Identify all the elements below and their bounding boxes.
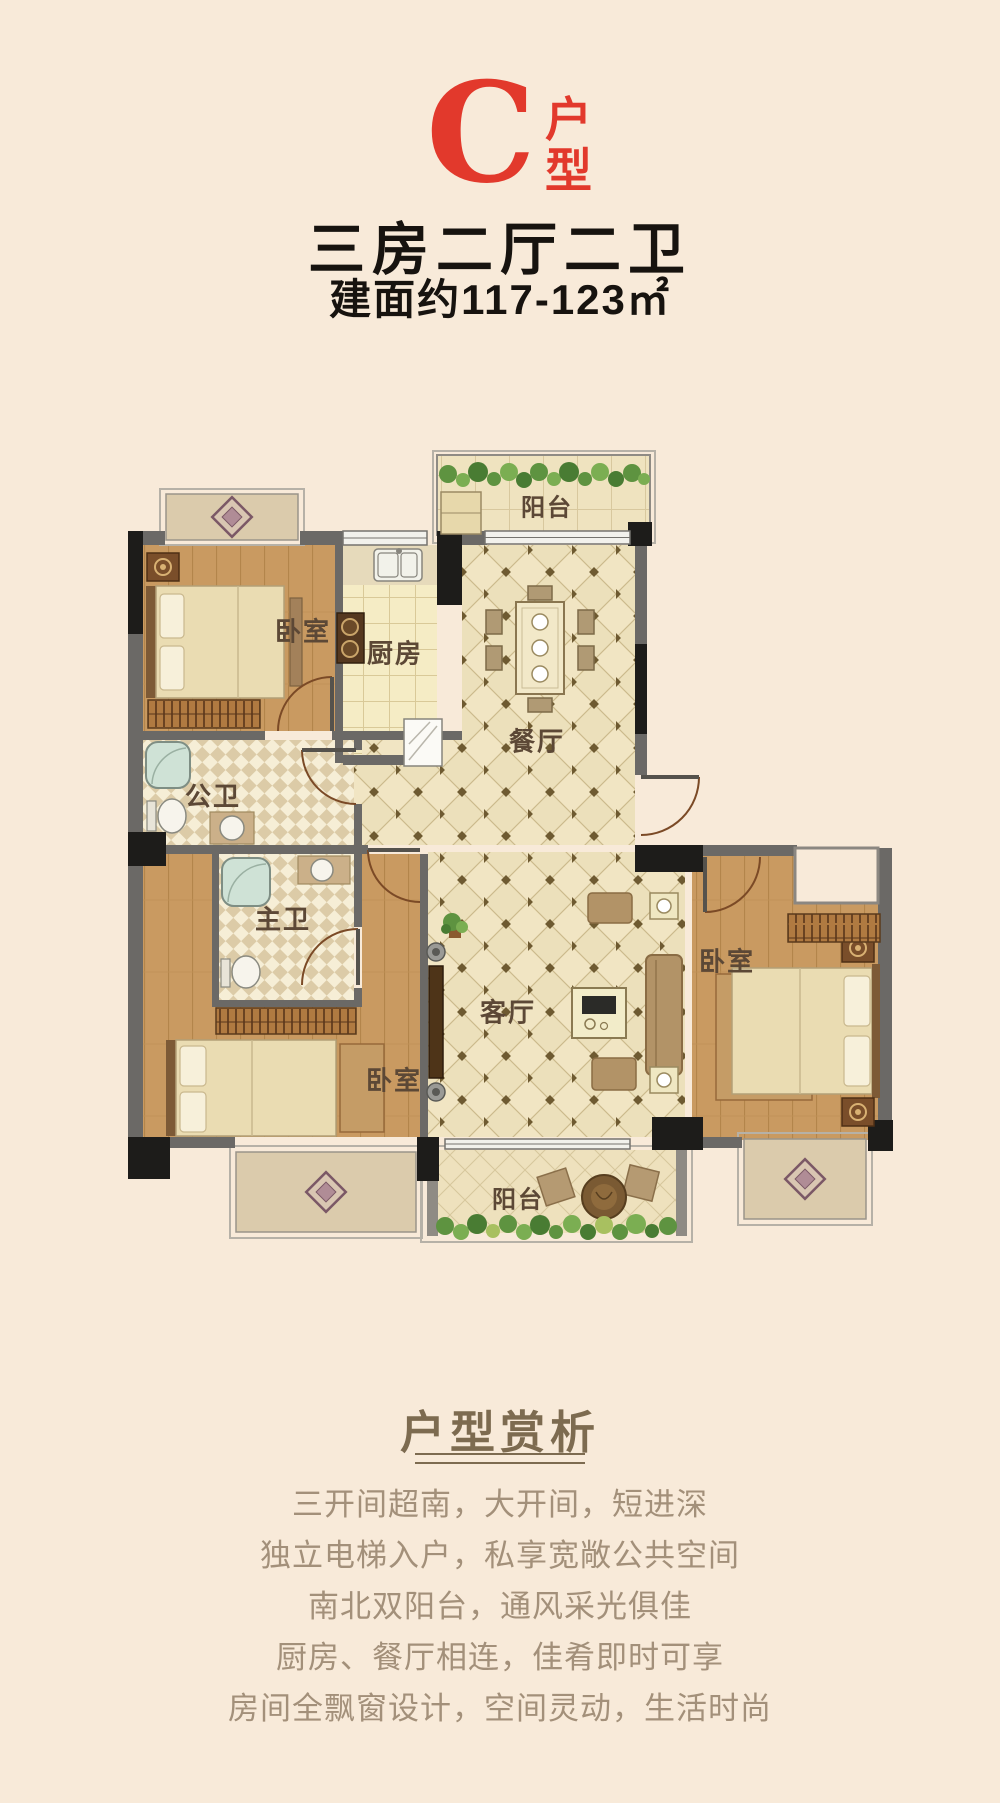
room-label-balcony-north: 阳台 xyxy=(521,488,573,523)
unit-label-top-char: 户 xyxy=(545,94,592,145)
analysis-text: 三开间超南，大开间，短进深 独立电梯入户，私享宽敞公共空间 南北双阳台，通风采光… xyxy=(0,1479,1000,1734)
analysis-line: 南北双阳台，通风采光俱佳 xyxy=(0,1581,1000,1632)
analysis-line: 厨房、餐厅相连，佳肴即时可享 xyxy=(0,1632,1000,1683)
bath-sink-icon xyxy=(210,812,254,844)
room-label-bedroom-right: 卧室 xyxy=(699,942,755,979)
unit-label-bottom-char: 型 xyxy=(545,145,592,196)
glass-door-icon xyxy=(404,719,442,766)
wardrobe-icon xyxy=(216,1008,356,1034)
room-label-kitchen: 厨房 xyxy=(367,634,423,671)
unit-letter: C xyxy=(426,64,536,202)
tv-console-icon xyxy=(427,943,445,1101)
toilet-icon xyxy=(147,799,186,833)
area-text: 建面约117-123㎡ xyxy=(0,266,1000,327)
toilet-icon xyxy=(221,956,260,988)
room-label-bath-master: 主卫 xyxy=(255,900,311,937)
wardrobe-icon xyxy=(788,914,880,942)
room-label-bedroom-top: 卧室 xyxy=(275,612,331,649)
floorplan: 阳台 卧室 厨房 餐厅 公卫 主卫 卧室 客厅 卧室 阳台 xyxy=(100,430,900,1260)
shower-icon xyxy=(146,742,190,788)
exterior-notch xyxy=(795,848,878,903)
stove-icon xyxy=(337,613,364,663)
floorplan-graphic xyxy=(100,430,900,1260)
room-label-balcony-south: 阳台 xyxy=(492,1180,544,1215)
wardrobe-icon xyxy=(148,700,260,728)
poster-page: C 户 型 三房二厅二卫 建面约117-123㎡ xyxy=(0,0,1000,1803)
analysis-heading: 户型赏析 xyxy=(0,1396,1000,1461)
bed-icon xyxy=(166,1040,384,1136)
analysis-line: 房间全飘窗设计，空间灵动，生活时尚 xyxy=(0,1683,1000,1734)
unit-type-label: 户 型 xyxy=(545,94,592,196)
bath-sink-icon xyxy=(298,856,350,884)
analysis-line: 独立电梯入户，私享宽敞公共空间 xyxy=(0,1530,1000,1581)
room-label-living: 客厅 xyxy=(480,993,536,1030)
room-label-bedroom-left: 卧室 xyxy=(366,1061,422,1098)
room-label-bath-public: 公卫 xyxy=(185,777,241,814)
analysis-line: 三开间超南，大开间，短进深 xyxy=(0,1479,1000,1530)
coffee-table-icon xyxy=(572,988,626,1038)
kitchen-sink-icon xyxy=(374,548,422,581)
heading-divider xyxy=(415,1453,585,1464)
room-label-dining: 餐厅 xyxy=(509,722,565,759)
